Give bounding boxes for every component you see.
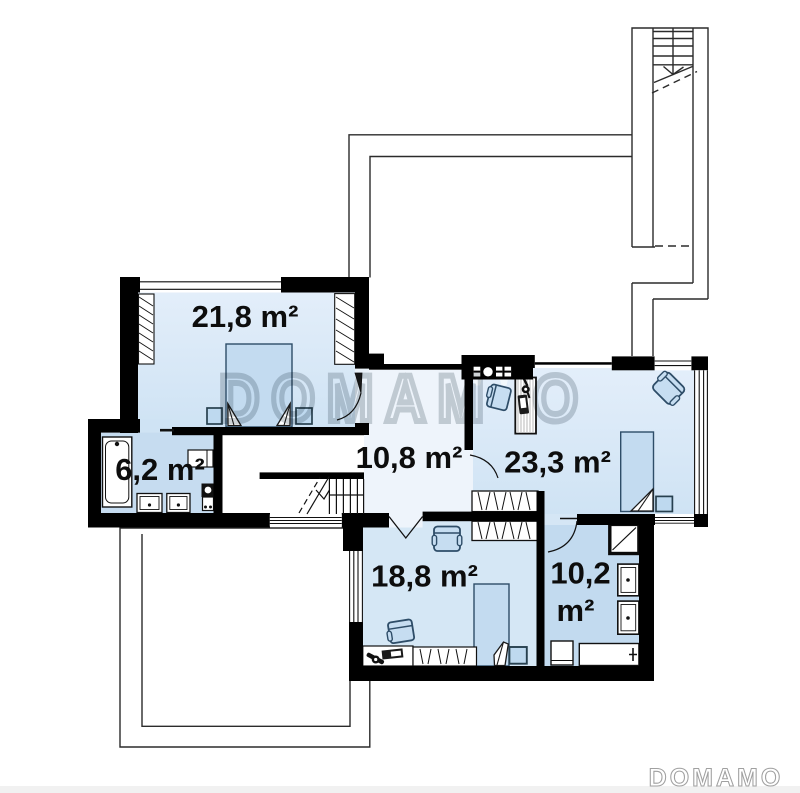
- svg-text:10,2: 10,2: [550, 556, 610, 591]
- svg-text:10,8 m²: 10,8 m²: [356, 440, 463, 475]
- svg-text:21,8 m²: 21,8 m²: [192, 299, 299, 334]
- svg-text:23,3 m²: 23,3 m²: [504, 445, 611, 480]
- svg-text:DOMAM: DOMAM: [219, 362, 496, 435]
- svg-text:18,8 m²: 18,8 m²: [371, 559, 478, 594]
- svg-text:6,2 m²: 6,2 m²: [115, 452, 205, 487]
- svg-text:m²: m²: [557, 593, 595, 628]
- svg-text:O: O: [533, 363, 578, 436]
- svg-text:DOMAMO: DOMAMO: [649, 764, 784, 792]
